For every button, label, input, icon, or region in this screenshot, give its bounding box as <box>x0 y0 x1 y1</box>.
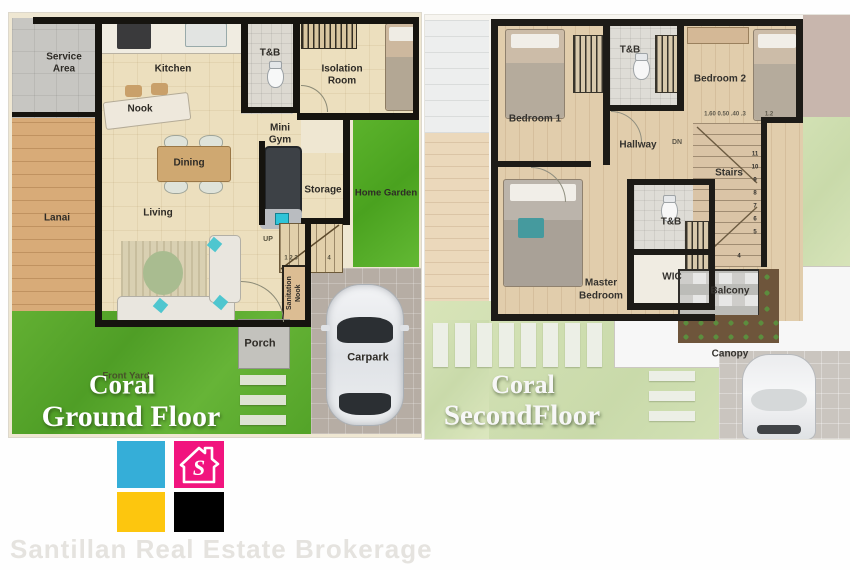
bedroom2-desk <box>687 27 749 44</box>
wardrobe <box>301 23 357 49</box>
room-label-wic: WIC <box>662 271 681 283</box>
room-label-master-line1: Master <box>585 277 617 289</box>
room-label-tb: T&B <box>260 47 281 59</box>
logo-cyan-square <box>117 441 165 488</box>
plan-title-line2: Ground Floor <box>42 400 221 434</box>
room-label-tb-upper: T&B <box>620 44 641 56</box>
logo-yellow-square <box>117 492 165 532</box>
ground-floor-plan: Service Area Kitchen Nook T&B Isolation … <box>8 12 422 438</box>
house-logo-icon: S <box>174 441 224 488</box>
plan-title-line2: SecondFloor <box>444 400 600 433</box>
toilet <box>267 65 284 88</box>
step-number: 7 <box>753 204 756 211</box>
company-name: Santillan Real Estate Brokerage <box>10 534 433 565</box>
room-label-sanitation-nook: Sanitation Nook <box>285 268 303 318</box>
room-label-nook: Nook <box>128 103 153 115</box>
tb-floor <box>241 18 293 114</box>
stairs-dims: 1.60 0.50 .40 .3 <box>704 112 746 119</box>
car-mirror <box>321 325 330 331</box>
step-number: 4 <box>737 254 740 261</box>
step-number: 10 <box>752 165 759 172</box>
car-windshield <box>337 317 393 343</box>
room-label-tb-lower: T&B <box>661 216 682 228</box>
right-wall-strip <box>803 15 850 117</box>
wardrobe <box>573 35 603 93</box>
stepping-stone <box>649 411 695 421</box>
bedroom1-bed <box>505 29 565 119</box>
room-label-isolation: Isolation Room <box>309 64 375 87</box>
room-label-storage: Storage <box>304 184 341 196</box>
second-floor-plan: Bedroom 1 T&B Bedroom 2 Hallway Stairs D… <box>424 14 850 440</box>
plan-title-line1: Coral <box>491 370 555 400</box>
stepping-stone <box>240 415 286 425</box>
room-label-bedroom2: Bedroom 2 <box>694 73 746 85</box>
stair-mark-end: 4 <box>327 256 330 263</box>
room-label-balcony: Balcony <box>711 285 750 297</box>
room-label-porch: Porch <box>244 338 275 351</box>
room-label-service-area: Service Area <box>36 52 92 75</box>
step-number: 8 <box>753 191 756 198</box>
logo-magenta-square: S <box>174 441 224 488</box>
wic-wardrobe <box>685 221 711 275</box>
nook-stool <box>151 83 168 95</box>
plan-title-line1: Coral <box>89 370 155 401</box>
car-front-view <box>743 355 815 439</box>
stepping-stone <box>240 395 286 405</box>
left-deck-strip <box>425 133 489 323</box>
step-number: 5 <box>753 230 756 237</box>
room-label-bedroom1: Bedroom 1 <box>509 113 561 125</box>
room-label-home-garden: Home Garden <box>355 189 417 200</box>
bedroom2-bed <box>753 29 801 121</box>
step-number: 9 <box>753 178 756 185</box>
room-label-dining: Dining <box>173 157 204 169</box>
room-label-master-line2: Bedroom <box>579 290 623 302</box>
stepping-stone <box>240 375 286 385</box>
sink <box>185 23 227 47</box>
room-label-living: Living <box>143 207 172 219</box>
room-label-stairs: Stairs <box>715 167 743 179</box>
stepping-stone <box>649 371 695 381</box>
room-label-canopy: Canopy <box>712 348 749 360</box>
floorplan-sheet: Service Area Kitchen Nook T&B Isolation … <box>0 0 850 570</box>
room-label-hallway: Hallway <box>619 139 656 151</box>
stove <box>117 23 151 49</box>
room-label-kitchen: Kitchen <box>155 63 192 75</box>
room-label-mini-gym: Mini Gym <box>262 123 298 146</box>
car-mirror <box>400 325 409 331</box>
stair-marks: 1 2 3 <box>284 256 297 263</box>
nook-stool <box>125 85 142 97</box>
logo-black-square <box>174 492 224 532</box>
car-rear-window <box>339 393 391 415</box>
toilet <box>633 57 650 80</box>
svg-text:S: S <box>193 455 205 480</box>
room-label-lanai: Lanai <box>44 212 70 224</box>
room-label-carpark: Carpark <box>347 352 389 365</box>
step-number: 11 <box>752 152 758 159</box>
stairs-dims2: 1.2 <box>765 112 773 119</box>
stepping-stone <box>649 391 695 401</box>
step-number: 6 <box>753 217 756 224</box>
stairs-dn-label: DN <box>672 139 682 147</box>
stairs-up-label: UP <box>263 236 273 244</box>
left-wall-strip <box>425 20 489 133</box>
rug-oval <box>143 251 183 295</box>
